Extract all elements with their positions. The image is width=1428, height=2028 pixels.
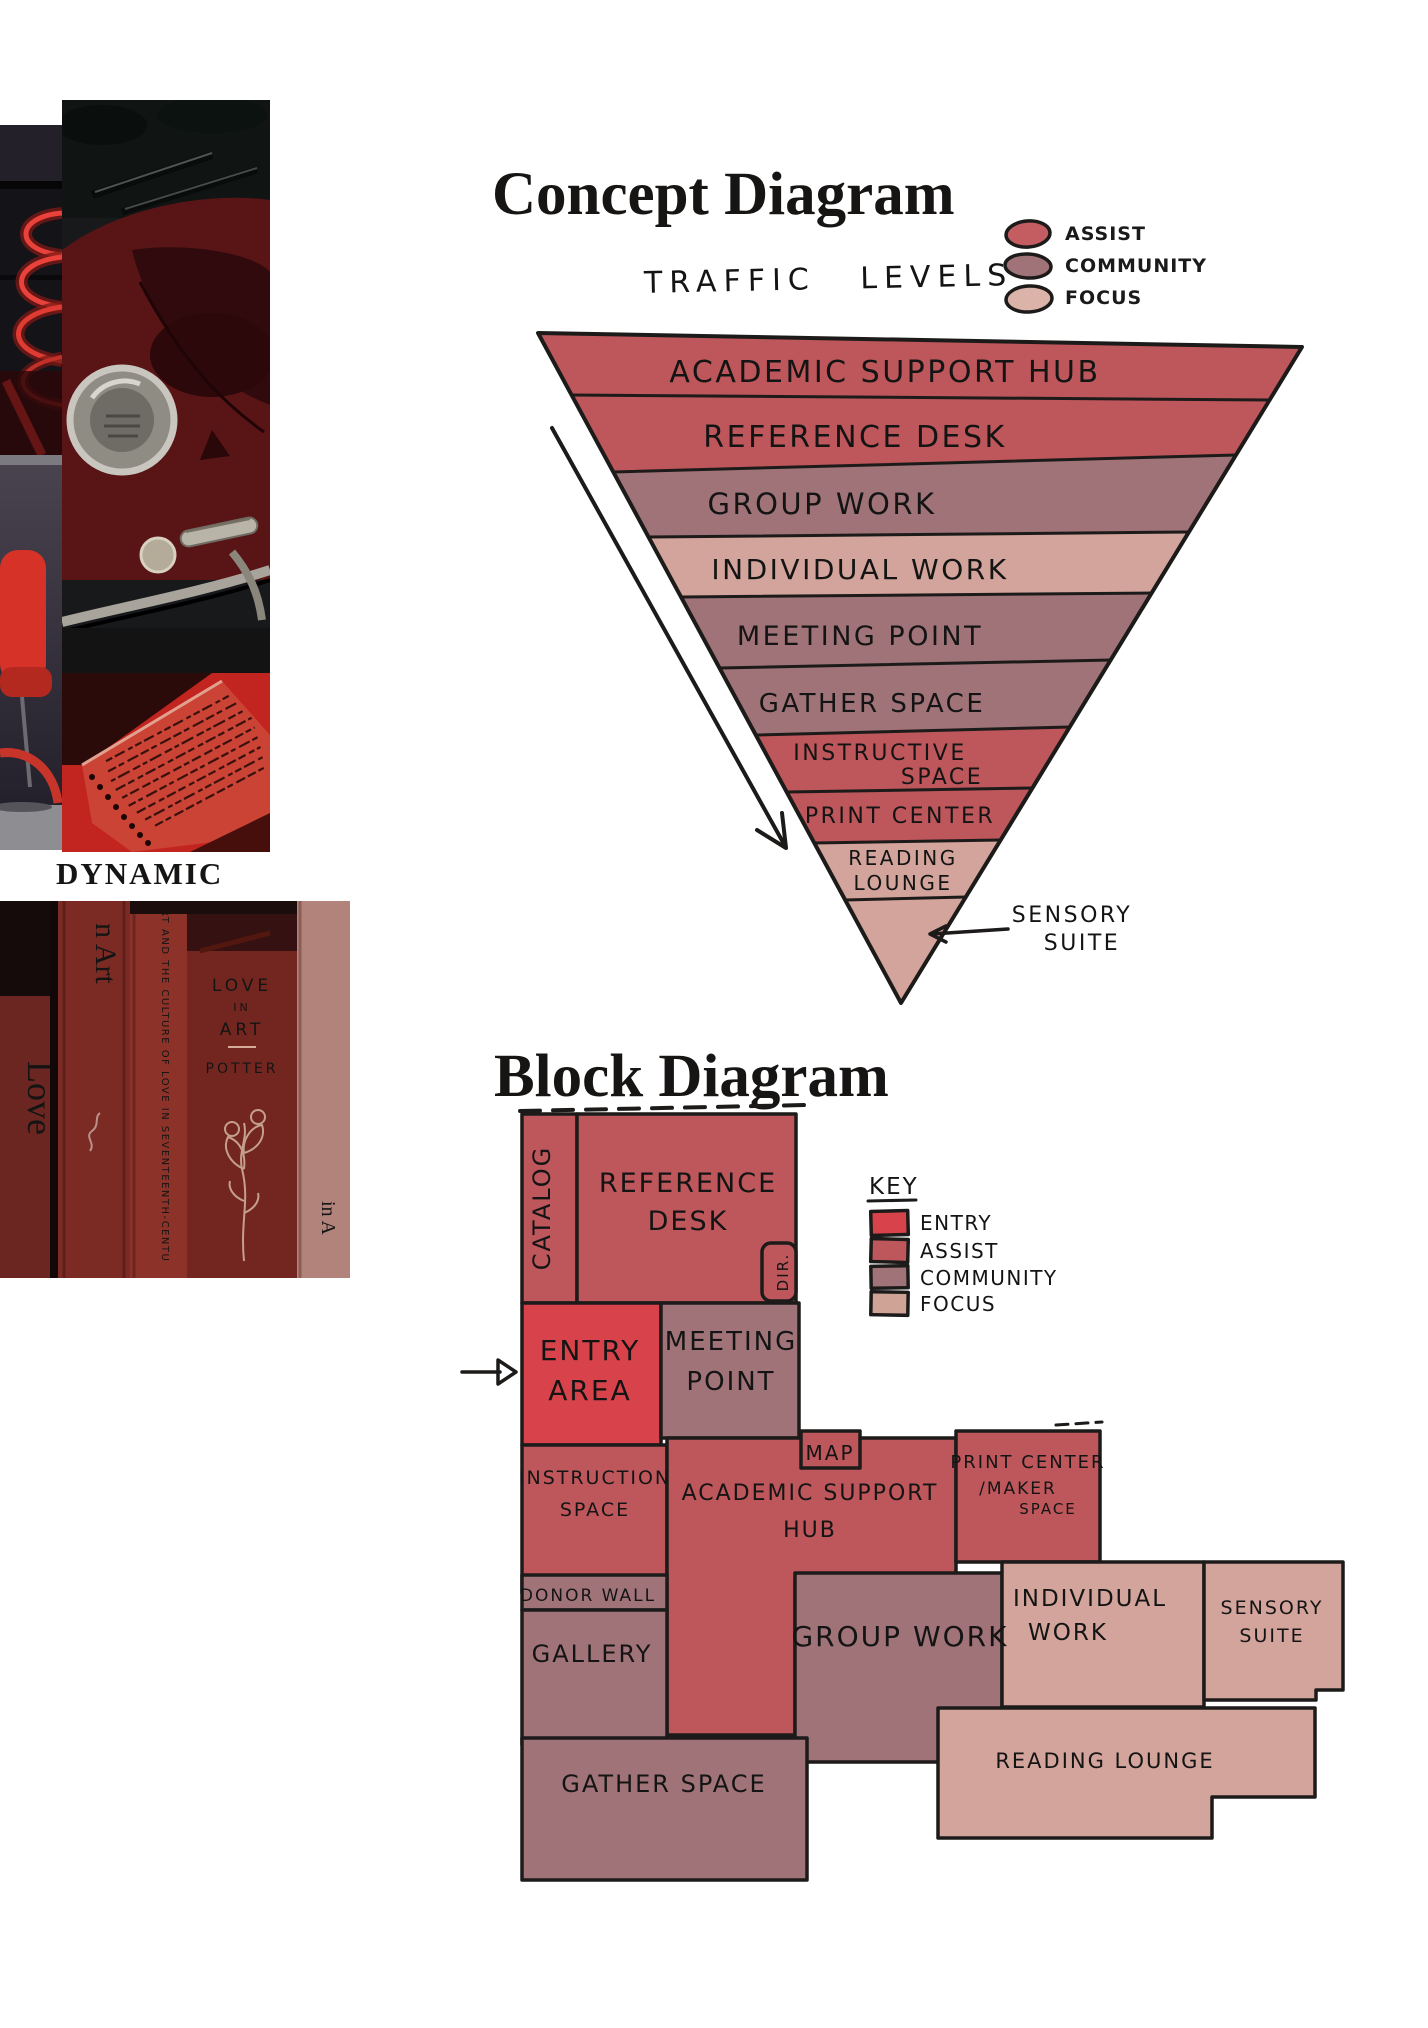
key-label-entry: ENTRY — [920, 1211, 992, 1235]
traffic-levels-subtitle: TRAFFIC LEVELS — [644, 258, 1014, 301]
book-spine-love-in-art-line2: IN — [233, 1001, 250, 1014]
book-spine-culture-text: RT AND THE CULTURE OF LOVE IN SEVENTEENT… — [159, 909, 170, 1262]
moodboard-caption: DYNAMIC — [56, 856, 223, 892]
room-label-gallery: GALLERY — [532, 1640, 653, 1668]
room-label-instruction-1: INSTRUCTION — [519, 1467, 671, 1489]
room-label-print-1: PRINT CENTER — [950, 1452, 1105, 1473]
level-label-individual-work: INDIVIDUAL WORK — [711, 553, 1008, 586]
room-label-print-2: /MAKER — [979, 1479, 1057, 1499]
concept-diagram-title: Concept Diagram — [492, 160, 955, 230]
pyramid-band-sensory-suite — [845, 897, 966, 1003]
room-label-reading-lounge: READING LOUNGE — [995, 1749, 1214, 1773]
concept-legend: ASSIST COMMUNITY FOCUS — [1003, 218, 1207, 314]
dashed-edge-print-center — [1056, 1422, 1102, 1425]
room-label-directory: DIR. — [774, 1253, 792, 1292]
traffic-levels-pyramid: ACADEMIC SUPPORT HUB REFERENCE DESK GROU… — [430, 315, 1340, 1015]
room-label-reference-desk-2: DESK — [648, 1206, 729, 1237]
level-label-academic-support-hub: ACADEMIC SUPPORT HUB — [669, 355, 1100, 390]
room-label-gather-space: GATHER SPACE — [561, 1770, 766, 1798]
room-label-individual-2: WORK — [1028, 1620, 1108, 1646]
moodboard-photo-chair — [0, 455, 62, 850]
moodboard-photo-car — [62, 100, 270, 673]
room-gallery — [522, 1610, 667, 1745]
block-diagram: CATALOG REFERENCE DESK DIR. ENTRY AREA M… — [450, 1095, 1370, 1905]
room-label-ash-1: ACADEMIC SUPPORT — [682, 1481, 939, 1506]
legend-row-assist: ASSIST — [1003, 218, 1207, 250]
key-title: KEY — [869, 1174, 919, 1200]
moodboard-photo-neon — [0, 125, 62, 455]
room-label-donor-wall: DONOR WALL — [520, 1586, 656, 1606]
key-swatch-community — [871, 1266, 908, 1289]
room-label-entry-1: ENTRY — [540, 1334, 641, 1367]
room-label-meeting-2: POINT — [686, 1367, 775, 1397]
room-gather-space — [522, 1738, 807, 1880]
level-label-instructive: INSTRUCTIVE — [793, 741, 966, 766]
legend-label-focus: FOCUS — [1065, 287, 1142, 309]
community-swatch-icon — [1003, 250, 1055, 282]
key-label-community: COMMUNITY — [920, 1266, 1058, 1290]
book-spine-in-a-text: in A — [317, 1201, 339, 1235]
legend-label-assist: ASSIST — [1065, 223, 1146, 245]
legend-label-community: COMMUNITY — [1065, 255, 1207, 277]
room-label-individual-1: INDIVIDUAL — [1013, 1586, 1167, 1612]
focus-swatch-icon — [1003, 282, 1055, 314]
room-label-print-3: SPACE — [1019, 1500, 1077, 1518]
level-label-gather-space: GATHER SPACE — [759, 689, 986, 719]
key-label-focus: FOCUS — [920, 1292, 996, 1316]
key-swatch-focus — [871, 1292, 908, 1316]
room-label-group-work: GROUP WORK — [791, 1620, 1008, 1653]
room-label-catalog: CATALOG — [528, 1146, 556, 1271]
room-label-sensory-2: SUITE — [1239, 1625, 1304, 1647]
legend-row-focus: FOCUS — [1003, 282, 1207, 314]
room-label-entry-2: AREA — [548, 1374, 631, 1407]
level-label-sensory: SENSORY — [1012, 903, 1132, 928]
key-swatch-assist — [871, 1239, 909, 1263]
moodboard-photo-notebook — [62, 673, 270, 852]
room-label-meeting-1: MEETING — [665, 1327, 797, 1357]
level-label-reading: READING — [848, 846, 957, 870]
key-swatch-entry — [871, 1211, 909, 1236]
level-label-meeting-point: MEETING POINT — [737, 621, 983, 652]
level-label-group-work: GROUP WORK — [707, 487, 936, 521]
book-spine-n-art-text: n Art — [89, 923, 122, 985]
room-reading-lounge — [938, 1708, 1315, 1838]
level-label-print-center: PRINT CENTER — [805, 804, 995, 829]
room-label-sensory-1: SENSORY — [1221, 1597, 1324, 1619]
key-label-assist: ASSIST — [920, 1239, 999, 1263]
level-label-reading-lounge: LOUNGE — [854, 871, 953, 895]
room-label-ash-2: HUB — [783, 1518, 837, 1543]
dashed-edge-top — [520, 1105, 806, 1111]
key-title-underline — [868, 1200, 916, 1201]
book-spine-love-in-art-line1: LOVE — [212, 976, 272, 996]
level-label-reference-desk: REFERENCE DESK — [703, 420, 1006, 455]
book-spine-love-in-art-line3: ART — [220, 1020, 265, 1040]
room-label-reference-desk-1: REFERENCE — [599, 1168, 777, 1199]
room-label-map: MAP — [806, 1441, 855, 1465]
moodboard-photo-books: Love n Art RT AND THE CULTURE OF LOVE IN… — [0, 901, 350, 1278]
level-label-sensory-suite: SUITE — [1044, 931, 1120, 956]
book-spine-potter-text: POTTER — [206, 1061, 279, 1077]
legend-row-community: COMMUNITY — [1003, 250, 1207, 282]
level-label-instructive-space: SPACE — [901, 765, 983, 790]
assist-swatch-icon — [1003, 218, 1055, 250]
presentation-board: { "palette": { "ink": "#1d1b1a", "entry"… — [0, 0, 1428, 2028]
block-key: KEY ENTRY ASSIST COMMUNITY FOCUS — [868, 1174, 1058, 1316]
room-label-instruction-2: SPACE — [560, 1499, 630, 1521]
